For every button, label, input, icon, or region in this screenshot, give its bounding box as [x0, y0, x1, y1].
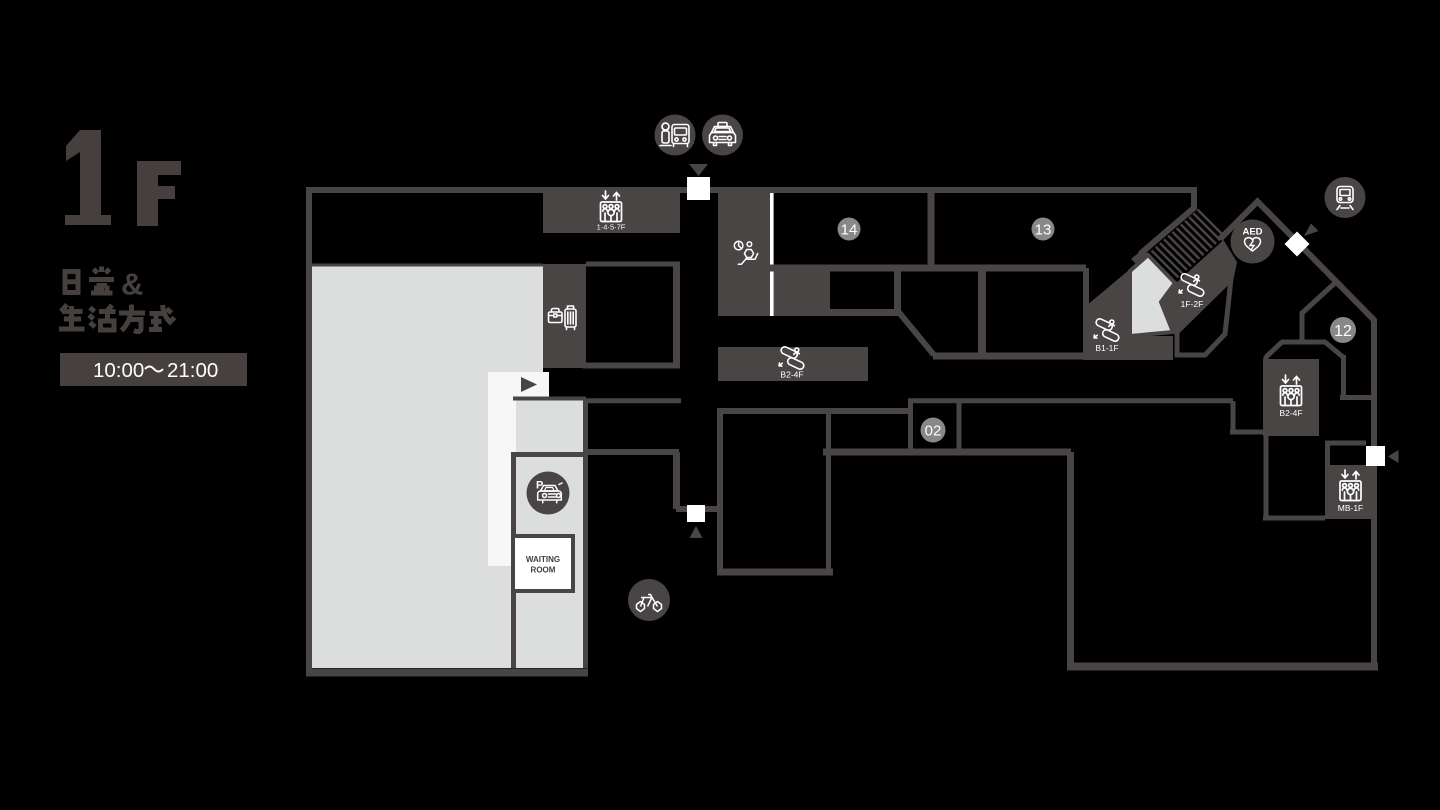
svg-text:WAITING: WAITING — [526, 555, 560, 564]
svg-text:1·4·5·7F: 1·4·5·7F — [597, 223, 626, 232]
svg-text:B2-4F: B2-4F — [1279, 408, 1302, 418]
svg-text:10:00: 10:00 — [93, 359, 144, 382]
svg-text:B1-1F: B1-1F — [1095, 343, 1118, 353]
svg-text:02: 02 — [925, 422, 942, 439]
svg-text:12: 12 — [1334, 323, 1352, 340]
svg-text:AED: AED — [1242, 227, 1262, 238]
svg-text:21:00: 21:00 — [167, 359, 218, 382]
svg-text:P: P — [536, 480, 543, 492]
svg-text:ROOM: ROOM — [531, 566, 556, 575]
svg-text:&: & — [121, 267, 143, 302]
svg-text:MB-1F: MB-1F — [1338, 503, 1364, 513]
svg-text:14: 14 — [841, 221, 858, 238]
svg-text:1F-2F: 1F-2F — [1181, 299, 1204, 309]
svg-text:13: 13 — [1035, 221, 1052, 238]
svg-text:B2-4F: B2-4F — [780, 370, 803, 380]
